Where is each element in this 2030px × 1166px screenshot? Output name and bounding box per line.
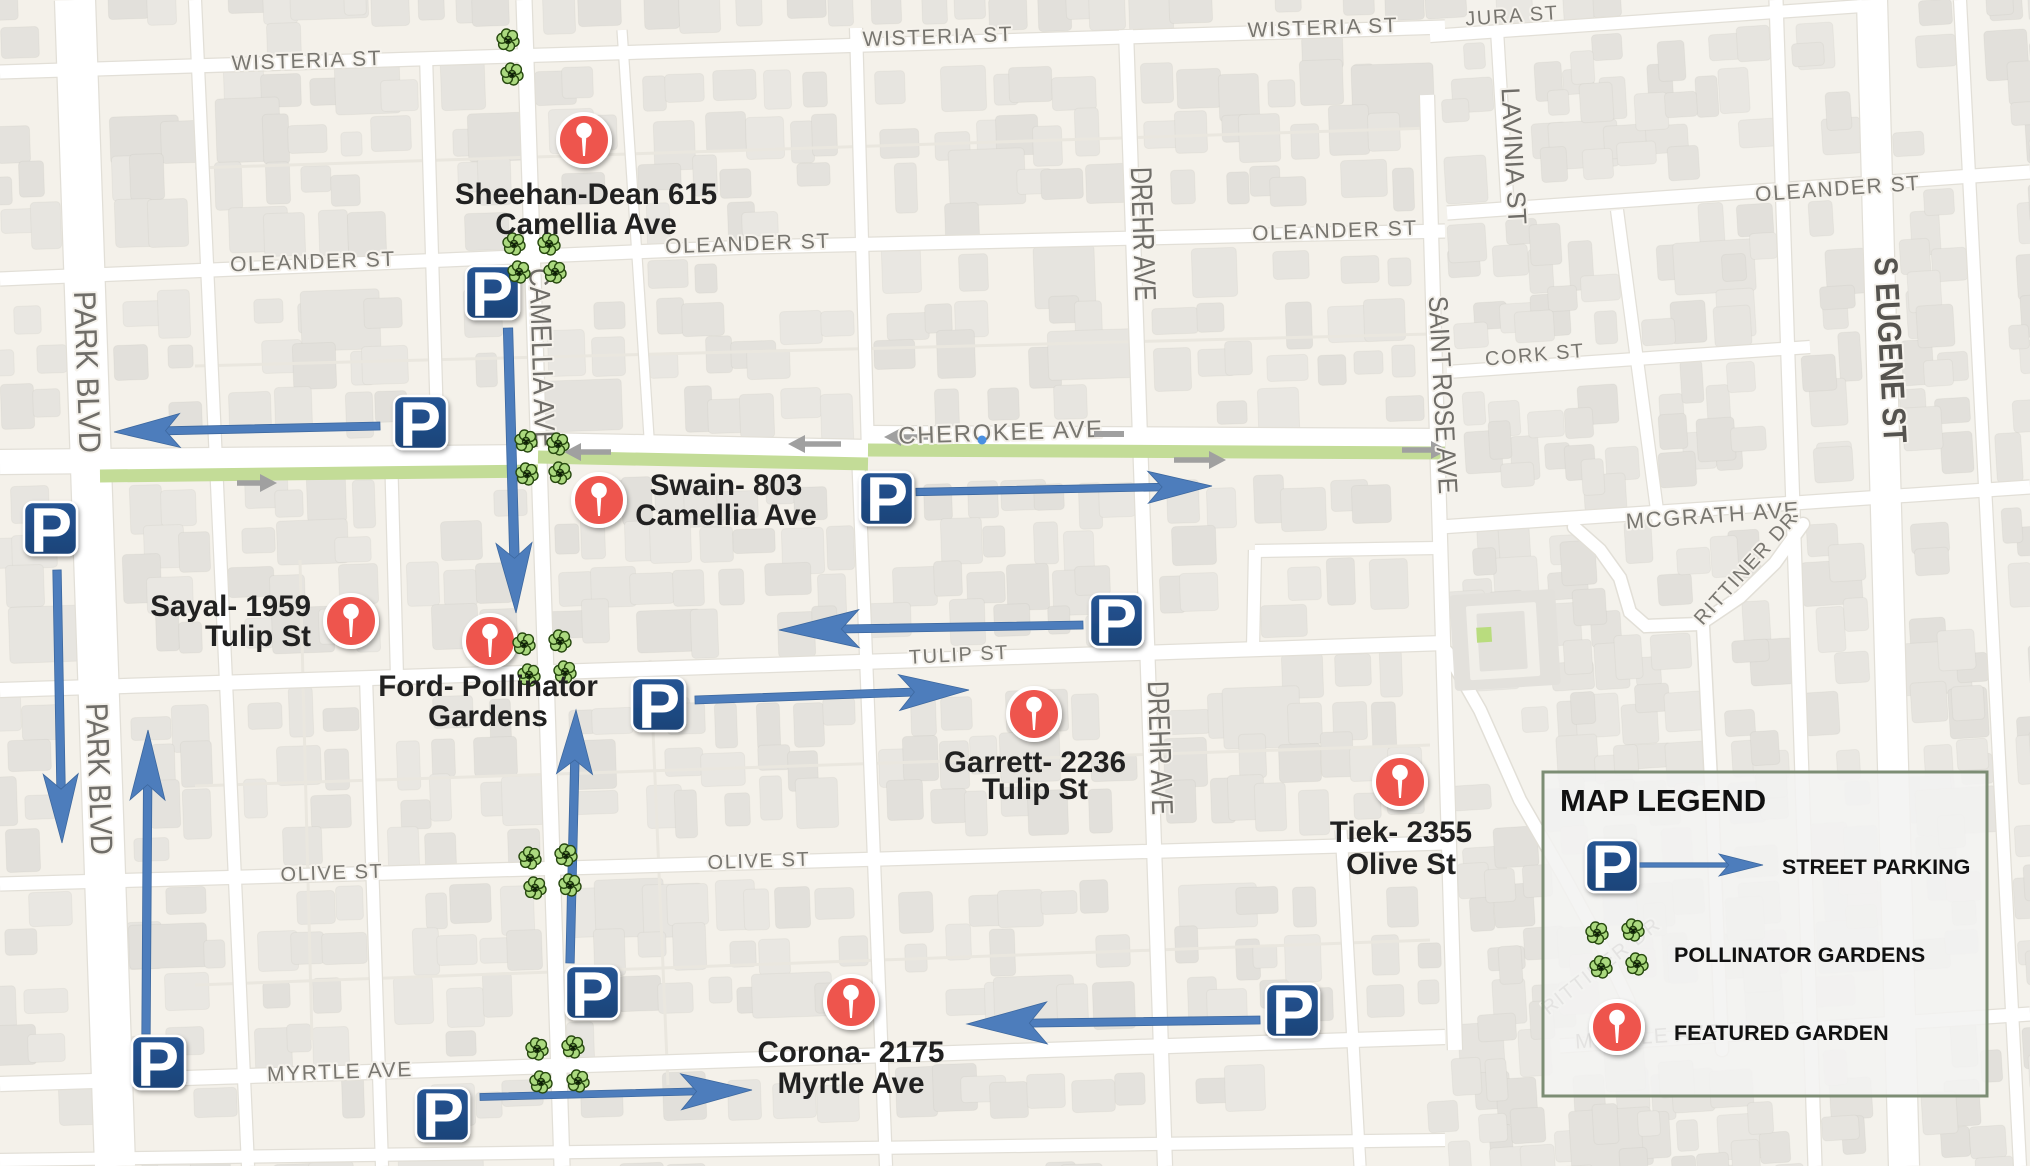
svg-text:MAP LEGEND: MAP LEGEND [1560,783,1766,818]
svg-text:P: P [638,672,680,742]
svg-text:P: P [1095,587,1137,657]
svg-text:P: P [1272,978,1314,1048]
svg-text:CAMELLIA AVE: CAMELLIA AVE [522,267,560,448]
svg-text:P: P [422,1081,464,1151]
svg-text:OLIVE ST: OLIVE ST [707,848,811,874]
svg-text:DREHR AVE: DREHR AVE [1124,166,1162,301]
svg-text:PARK BLVD: PARK BLVD [79,702,119,855]
svg-text:P: P [471,260,513,330]
svg-text:OLIVE ST: OLIVE ST [280,860,384,886]
svg-text:Corona- 2175Myrtle Ave: Corona- 2175Myrtle Ave [758,1036,945,1100]
svg-text:DREHR AVE: DREHR AVE [1141,680,1179,815]
svg-text:P: P [571,960,613,1030]
svg-text:P: P [866,465,908,535]
svg-text:P: P [30,496,72,566]
svg-text:FEATURED GARDEN: FEATURED GARDEN [1674,1021,1889,1045]
svg-text:Tiek- 2355Olive St: Tiek- 2355Olive St [1330,816,1472,881]
svg-text:STREET PARKING: STREET PARKING [1782,855,1970,879]
svg-text:POLLINATOR GARDENS: POLLINATOR GARDENS [1674,943,1925,967]
svg-text:PARK BLVD: PARK BLVD [67,290,108,453]
svg-text:P: P [1592,833,1633,901]
svg-text:Swain- 803Camellia Ave: Swain- 803Camellia Ave [635,469,816,532]
svg-text:P: P [137,1030,179,1100]
svg-text:P: P [399,390,441,460]
